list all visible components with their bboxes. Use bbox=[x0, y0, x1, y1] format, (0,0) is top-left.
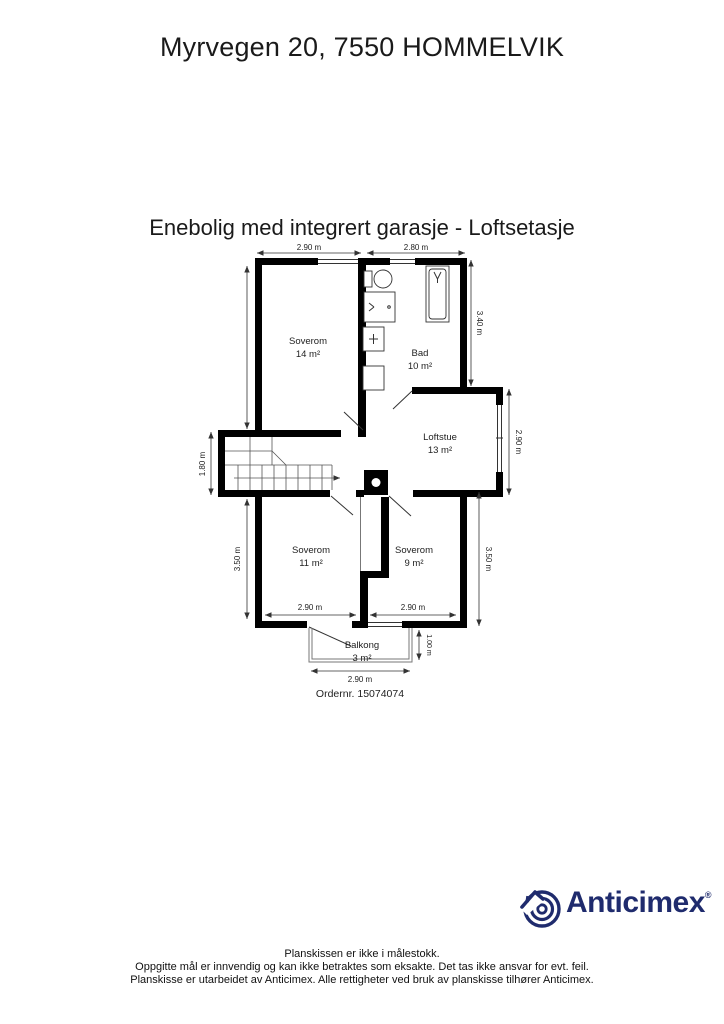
floor-plan-page: Myrvegen 20, 7550 HOMMELVIK Enebolig med… bbox=[0, 0, 724, 1024]
room-label-soverom-14: Soverom 14 m² bbox=[289, 336, 327, 360]
order-number: Ordernr. 15074074 bbox=[316, 688, 404, 700]
room-label-soverom-9: Soverom 9 m² bbox=[395, 545, 433, 569]
room-label-soverom-11: Soverom 11 m² bbox=[292, 545, 330, 569]
footer-disclaimer: Planskissen er ikke i målestokk. Oppgitt… bbox=[0, 948, 724, 988]
svg-text:14 m²: 14 m² bbox=[296, 349, 320, 360]
chimney bbox=[364, 470, 388, 495]
dim-balcony-width: 2.90 m bbox=[348, 675, 373, 684]
svg-text:10 m²: 10 m² bbox=[408, 361, 432, 372]
anticimex-logo: Anticimex® bbox=[512, 878, 712, 938]
anticimex-wordmark: Anticimex® bbox=[566, 886, 711, 920]
room-label-balkong: Balkong 3 m² bbox=[345, 640, 379, 664]
cabinet-icon bbox=[363, 327, 384, 351]
footer-line-3: Planskisse er utarbeidet av Anticimex. A… bbox=[0, 974, 724, 987]
dim-left-soverom11: 3.50 m bbox=[233, 546, 242, 571]
room-label-loftstue: Loftstue 13 m² bbox=[423, 432, 457, 456]
walls bbox=[218, 258, 503, 628]
dim-balcony-depth: 1.00 m bbox=[425, 634, 432, 656]
dim-left-stair: 1.80 m bbox=[198, 451, 207, 476]
svg-text:Soverom: Soverom bbox=[395, 545, 433, 556]
svg-text:Loftstue: Loftstue bbox=[423, 432, 457, 443]
floor-plan-drawing: 2.90 m 2.80 m 3.40 m 2.90 m 3.50 m 1.80 … bbox=[190, 235, 540, 710]
cabinet2-icon bbox=[363, 366, 384, 390]
dim-top-right: 2.80 m bbox=[404, 243, 429, 252]
dim-right-loftstue: 2.90 m bbox=[514, 430, 523, 455]
svg-text:11 m²: 11 m² bbox=[299, 558, 323, 569]
dim-bottom-soverom11: 2.90 m bbox=[298, 603, 323, 612]
page-title: Myrvegen 20, 7550 HOMMELVIK bbox=[0, 32, 724, 63]
room-label-bad: Bad 10 m² bbox=[408, 348, 432, 372]
svg-text:Balkong: Balkong bbox=[345, 640, 379, 651]
footer-line-2: Oppgitte mål er innvendig og kan ikke be… bbox=[0, 961, 724, 974]
anticimex-swirl-house-icon bbox=[518, 883, 564, 931]
svg-text:Bad: Bad bbox=[412, 348, 429, 359]
footer-line-1: Planskissen er ikke i målestokk. bbox=[0, 948, 724, 961]
toilet-icon bbox=[364, 270, 392, 288]
bathroom-fixtures bbox=[363, 266, 449, 390]
svg-text:Soverom: Soverom bbox=[292, 545, 330, 556]
sink-counter-icon bbox=[364, 292, 395, 322]
dim-top-left: 2.90 m bbox=[297, 243, 322, 252]
bathtub-icon bbox=[426, 266, 449, 322]
svg-text:3 m²: 3 m² bbox=[353, 653, 372, 664]
svg-text:9 m²: 9 m² bbox=[405, 558, 424, 569]
registered-trademark: ® bbox=[705, 890, 711, 900]
staircase bbox=[225, 437, 340, 490]
dim-right-bad: 3.40 m bbox=[475, 311, 484, 336]
dim-right-soverom9: 3.50 m bbox=[484, 547, 493, 572]
svg-text:13 m²: 13 m² bbox=[428, 445, 452, 456]
svg-text:Soverom: Soverom bbox=[289, 336, 327, 347]
dim-bottom-soverom9: 2.90 m bbox=[401, 603, 426, 612]
